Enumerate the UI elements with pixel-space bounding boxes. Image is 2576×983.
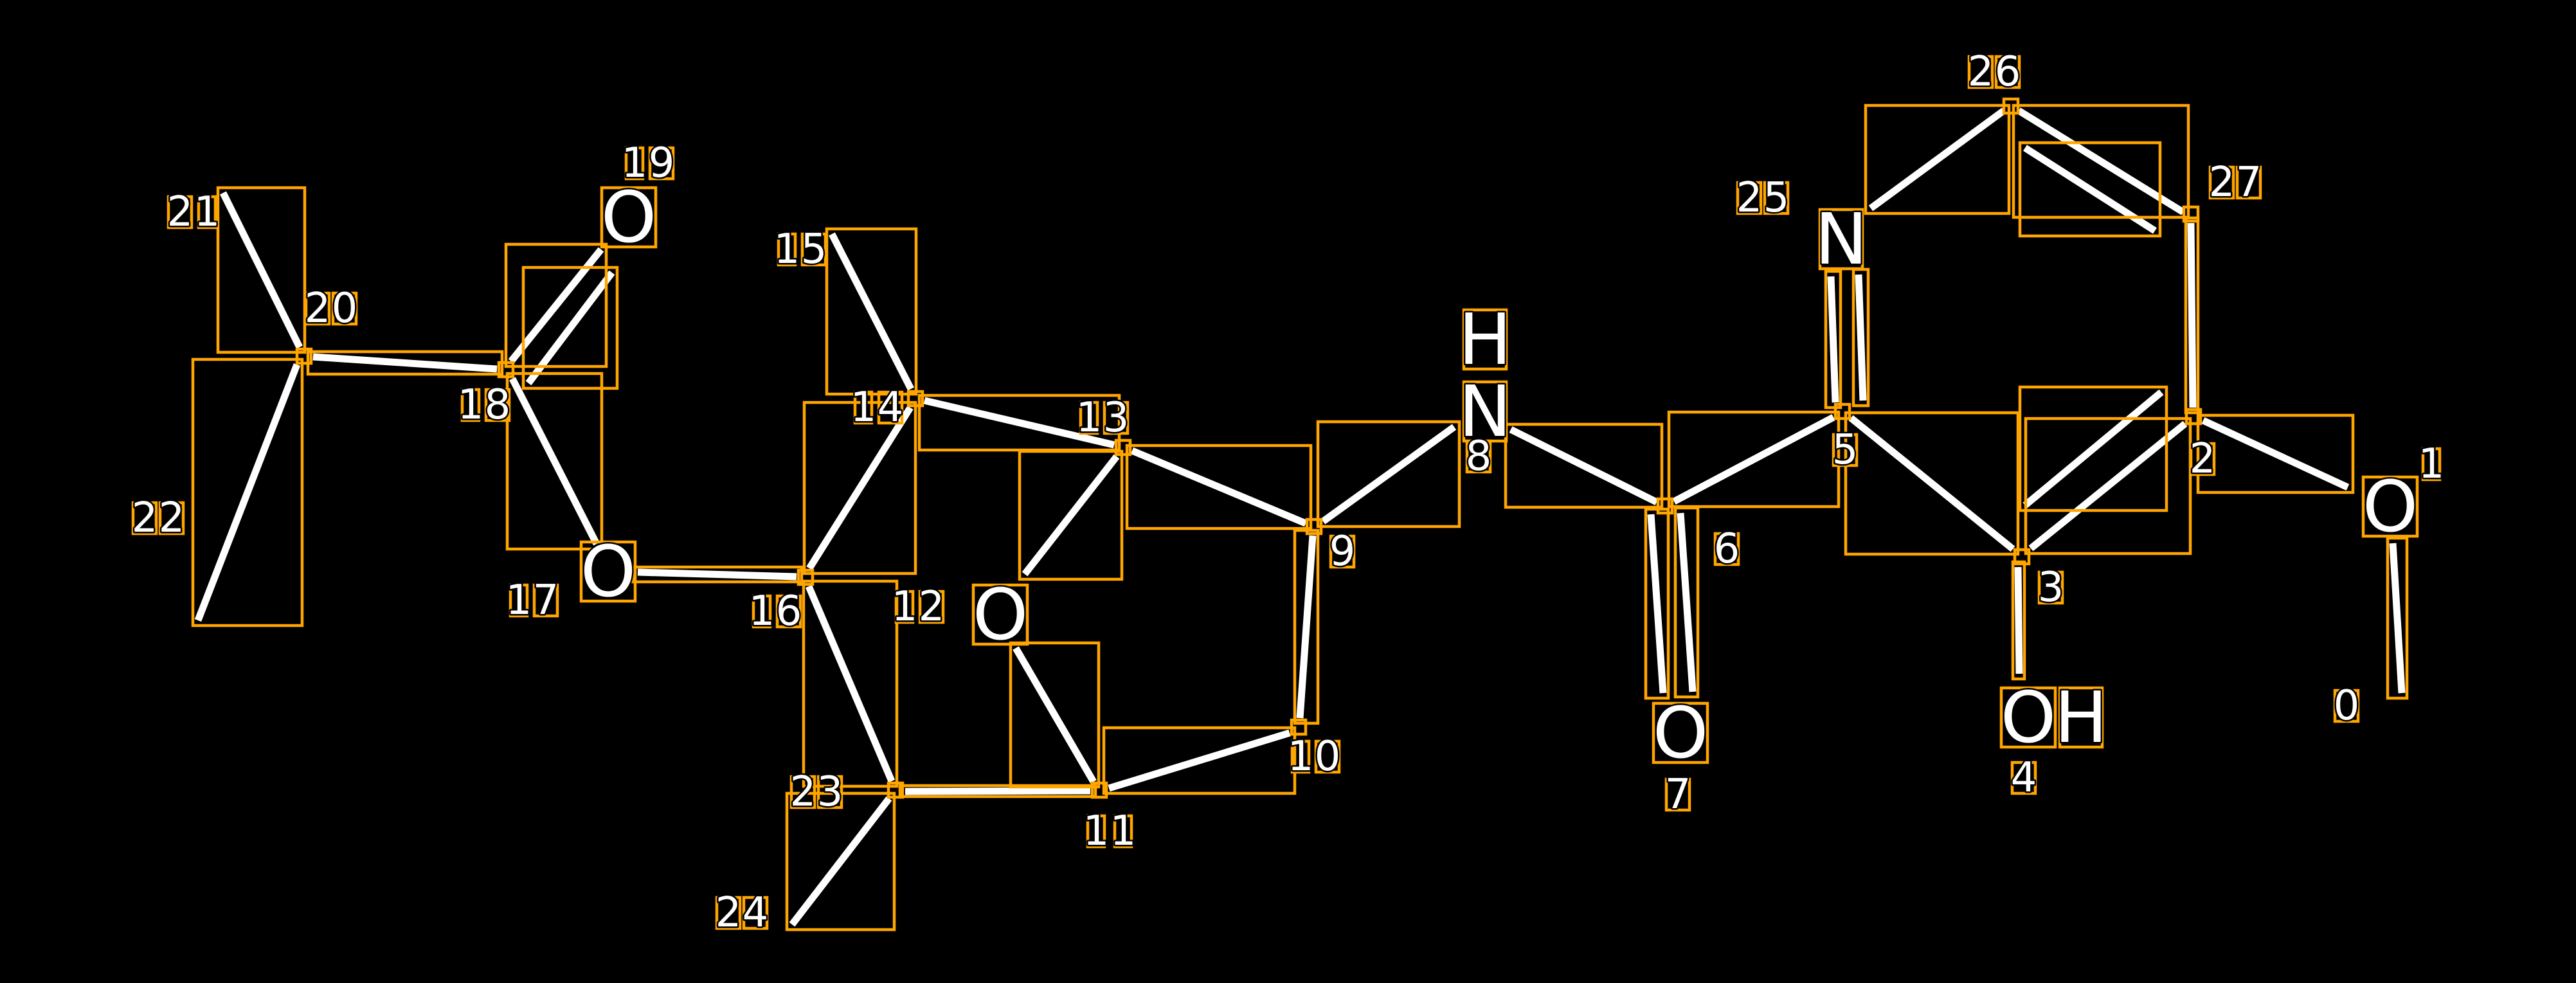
atom-label-27: 2: [2209, 159, 2235, 206]
element-glyph-25: N: [1815, 198, 1868, 280]
atom-label-19: 9: [649, 140, 675, 187]
atom-label-21: 1: [194, 188, 221, 236]
element-glyph-4: H: [2055, 676, 2108, 759]
atom-label-2: 2: [2190, 435, 2216, 483]
atom-label-25: 2: [1736, 174, 1763, 222]
bond-18-17: [512, 379, 597, 544]
atom-label-5: 5: [1832, 426, 1859, 474]
atom-label-18: 1: [458, 381, 484, 429]
bond-20-18: [313, 357, 497, 369]
atom-label-14: 1: [851, 384, 877, 431]
atom-label-20: 0: [332, 285, 358, 332]
bond-5-25-double: [1831, 276, 1835, 402]
element-glyph-1: O: [2363, 465, 2418, 548]
atom-label-12: 2: [919, 583, 945, 631]
bond-12-11: [1016, 648, 1094, 782]
atom-label-21: 2: [167, 188, 194, 236]
element-glyph-17: O: [581, 530, 636, 613]
bond-13-12: [1025, 456, 1117, 574]
bond-25-26: [1871, 111, 2004, 208]
atom-label-19: 1: [622, 140, 648, 187]
bond-5-3: [1851, 418, 2013, 549]
atom-label-12: 1: [892, 583, 918, 631]
bond-14-15: [832, 234, 911, 389]
atom-label-0: 0: [2334, 682, 2360, 730]
atom-label-6: 6: [1714, 525, 1740, 573]
bond-8-6: [1511, 429, 1657, 502]
bond-17-16: [638, 572, 797, 577]
bond-5-25-double: [1859, 275, 1863, 401]
atom-label-26: 6: [1995, 48, 2021, 96]
atom-label-15: 5: [801, 226, 827, 273]
atom-label-10: 1: [1288, 733, 1314, 780]
bond-2-3-double: [2025, 392, 2161, 505]
element-glyph-12: O: [973, 573, 1029, 656]
atom-label-23: 3: [817, 768, 843, 816]
bond-22-20: [198, 365, 297, 620]
bond-2-1: [2203, 420, 2348, 487]
bond-27-2: [2191, 223, 2193, 408]
atom-label-13: 1: [1076, 394, 1103, 442]
atom-label-1: 1: [2418, 440, 2445, 488]
atom-label-11: 1: [1083, 807, 1110, 855]
atom-label-27: 7: [2236, 159, 2262, 206]
bond-13-9: [1132, 451, 1306, 523]
atom-label-18: 8: [485, 381, 511, 429]
element-glyph-4: O: [2001, 676, 2057, 759]
bond-23-24: [792, 798, 889, 924]
bond-3-4: [2018, 567, 2019, 674]
element-glyph-7: O: [1653, 692, 1709, 774]
atom-label-16: 1: [749, 588, 775, 635]
atom-label-14: 4: [878, 384, 904, 431]
bond-16-14: [809, 408, 910, 568]
bond-11-23: [905, 791, 1090, 791]
atom-label-10: 0: [1315, 733, 1341, 780]
bond-6-7-double: [1680, 513, 1693, 692]
atom-label-26: 2: [1968, 48, 1994, 96]
atom-label-24: 4: [743, 889, 769, 937]
bond-21-20: [223, 193, 300, 347]
element-glyph-19: O: [601, 176, 657, 258]
bond-23-16: [809, 586, 892, 781]
atom-label-20: 2: [305, 285, 331, 332]
atom-label-9: 9: [1329, 528, 1356, 575]
atom-label-22: 2: [132, 494, 158, 542]
atom-label-24: 2: [716, 889, 742, 937]
atom-label-11: 1: [1110, 807, 1137, 855]
element-glyph-h-8: H: [1459, 298, 1512, 381]
atom-label-8: 8: [1466, 433, 1492, 480]
atom-label-4: 4: [2011, 754, 2037, 802]
bond-9-10: [1300, 536, 1313, 718]
atom-label-25: 5: [1763, 174, 1790, 222]
bond-lines-layer: [198, 111, 2402, 924]
atom-label-17: 1: [506, 577, 532, 624]
bond-6-7-double: [1651, 514, 1663, 693]
atom-label-23: 2: [790, 768, 816, 816]
bond-9-8: [1323, 427, 1454, 521]
atom-label-13: 3: [1103, 394, 1130, 442]
bond-2-3-double: [2031, 424, 2185, 548]
molecule-canvas: OOHONHOOON 01234567891011121314151617181…: [0, 0, 2576, 983]
atom-label-16: 6: [776, 588, 802, 635]
atom-label-15: 1: [774, 226, 800, 273]
screenshot-stage: OOHONHOOON 01234567891011121314151617181…: [0, 0, 2576, 983]
atom-label-22: 2: [159, 494, 185, 542]
element-glyphs-layer: OOHONHOOON: [581, 176, 2418, 774]
bond-6-5: [1674, 417, 1833, 501]
atom-label-7: 7: [1665, 771, 1691, 818]
atom-label-3: 3: [2038, 564, 2064, 611]
atom-label-17: 7: [533, 577, 559, 624]
bond-1-0: [2393, 543, 2402, 693]
bond-10-11: [1109, 733, 1290, 788]
